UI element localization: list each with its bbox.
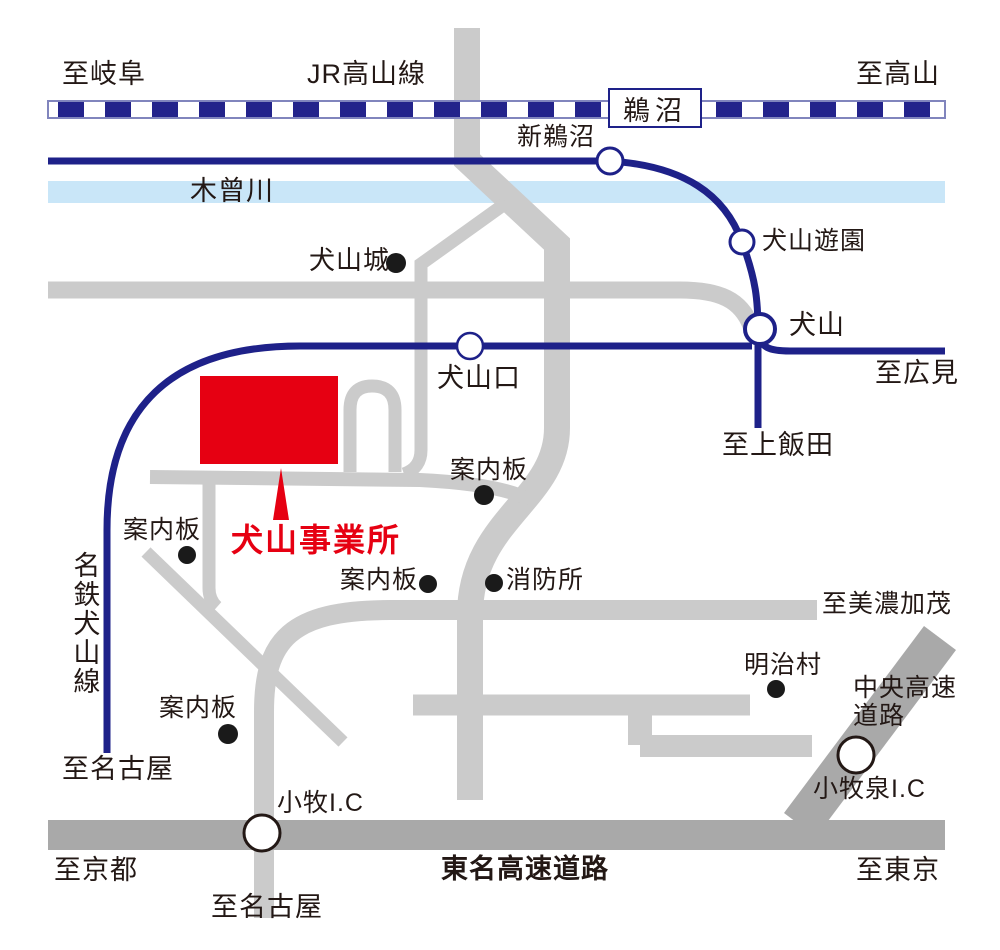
poi-dot-guide-board-west [178,546,196,564]
label-to-tokyo: 至東京 [856,856,940,884]
poi-dot-guide-board-south [218,724,238,744]
label-inuyamaguchi: 犬山口 [437,364,521,392]
poi-dot-guide-board-center [419,575,437,593]
label-shin-unuma: 新鵜沼 [517,124,595,150]
label-chuo-expressway-line1: 中央高速 [853,675,957,701]
ic-marker-komaki [244,815,280,851]
poi-dot-fire-station [485,574,503,592]
road-office-arch [350,386,395,472]
station-box-unuma-label: 鵜沼 [623,89,687,128]
label-guide-board-east: 案内板 [450,457,528,483]
label-to-hiromi: 至広見 [875,359,959,387]
poi-dot-meiji-mura [767,680,785,698]
road-castle-horizontal [48,290,751,326]
label-to-minokamo: 至美濃加茂 [822,591,952,617]
label-meiji-mura: 明治村 [744,652,822,678]
station-box-unuma: 鵜沼 [608,88,702,128]
label-inuyama: 犬山 [789,311,845,339]
office-building-marker [200,376,338,464]
label-inuyama-castle: 犬山城 [309,247,390,274]
label-kiso-river: 木曾川 [190,177,274,205]
label-to-kyoto: 至京都 [54,856,138,884]
label-to-nagoya-south: 至名古屋 [211,893,323,921]
label-jr-takayama-line: JR高山線 [307,60,426,88]
label-guide-board-west: 案内板 [123,517,201,543]
station-marker-inuyama-yuen [730,230,754,254]
label-komaki-ic: 小牧I.C [277,790,364,816]
label-inuyama-yuen: 犬山遊園 [762,228,866,254]
label-to-nagoya-west: 至名古屋 [62,755,174,783]
label-meitetsu-inuyama-line: 名鉄犬山線 [70,551,98,696]
label-guide-board-center: 案内板 [340,567,418,593]
label-guide-board-south: 案内板 [159,695,237,721]
label-office: 犬山事業所 [231,524,401,558]
label-to-kamiiida: 至上飯田 [722,431,834,459]
access-map: 至岐阜 JR高山線 至高山 鵜沼 新鵜沼 木曾川 犬山城 犬山遊園 犬山 至広見… [0,0,1000,950]
road-inuyamaguchi-thin [404,203,506,474]
hiromi-line [758,332,945,351]
jr-line-dashes [49,102,944,117]
station-marker-inuyamaguchi [457,333,483,359]
station-marker-shin-unuma [597,148,623,174]
poi-dot-guide-board-east [474,485,494,505]
label-tomei-expressway: 東名高速道路 [441,855,609,883]
label-komaki-izumi-ic: 小牧泉I.C [813,776,926,802]
label-chuo-expressway-line2: 道路 [853,703,905,729]
road-office-west-vertical [209,473,217,607]
label-to-gifu: 至岐阜 [62,60,146,88]
label-to-takayama: 至高山 [856,60,940,88]
label-fire-station: 消防所 [506,567,584,593]
station-marker-inuyama [745,314,775,344]
ic-marker-komaki-izumi [838,737,874,773]
